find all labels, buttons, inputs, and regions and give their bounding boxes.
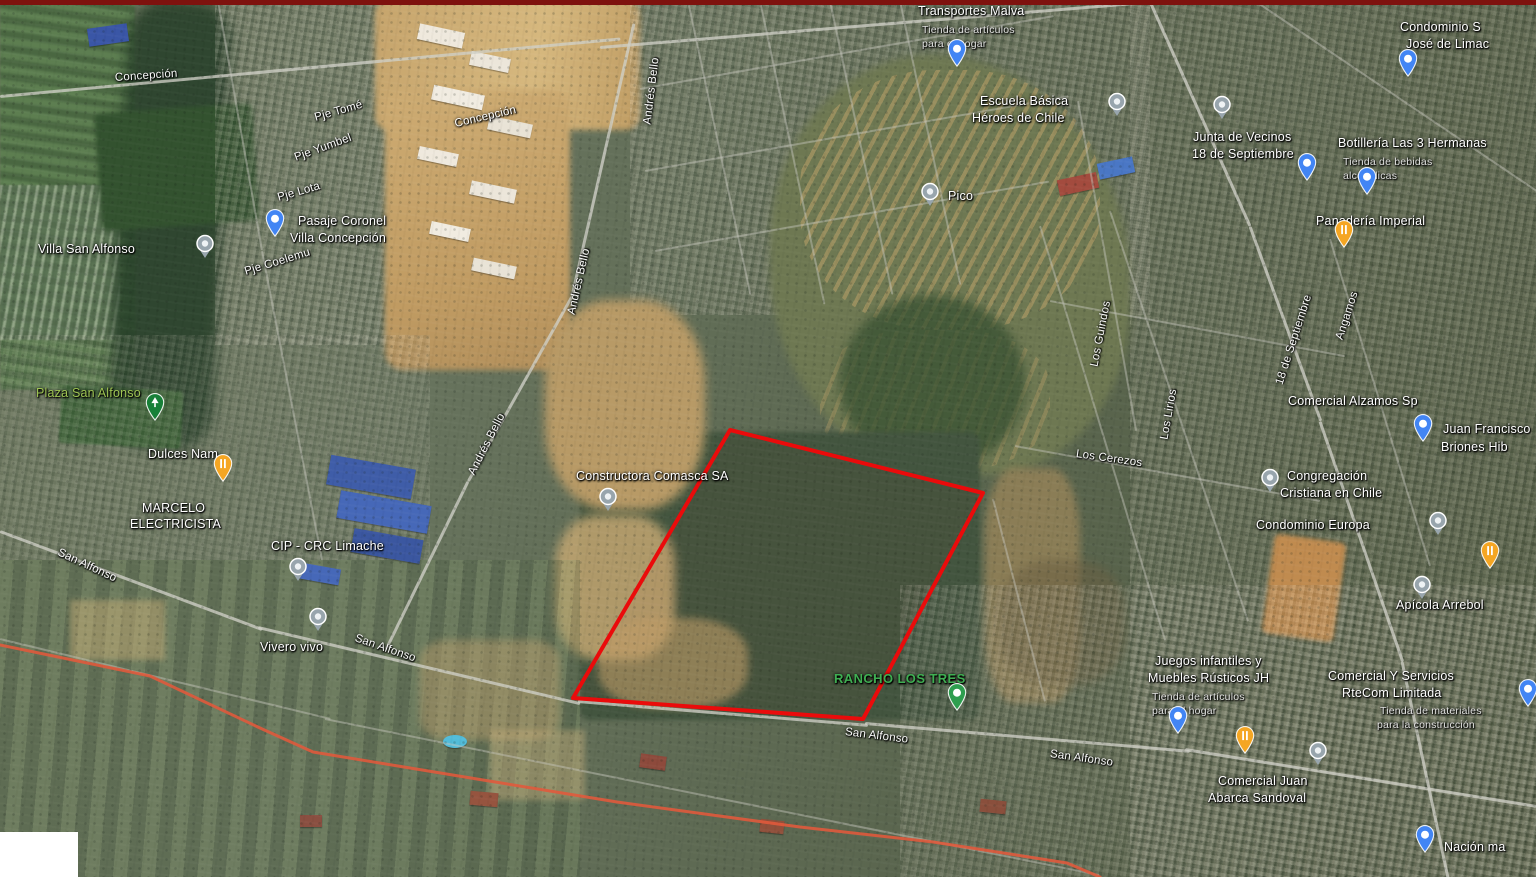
map-pin-blue[interactable]: [264, 208, 286, 242]
map-label-condominio-europa[interactable]: Condominio Europa: [1256, 518, 1370, 532]
map-label-ap-cola-arrebol[interactable]: Apícola Arrebol: [1396, 598, 1484, 612]
map-pin-blue[interactable]: [1414, 824, 1436, 858]
map-label-briones-hib[interactable]: Briones Hib: [1441, 440, 1508, 454]
map-label-plaza-san-alfonso: Plaza San Alfonso: [36, 386, 141, 400]
rural-lot-2: [420, 640, 560, 740]
map-label-comercial-juan[interactable]: Comercial Juan: [1218, 774, 1308, 788]
map-label-electricista[interactable]: ELECTRICISTA: [130, 517, 221, 531]
red-roof: [469, 791, 498, 807]
map-label-rtecom-limitada[interactable]: RteCom Limitada: [1342, 686, 1442, 700]
map-label-muebles-r-sticos-jh[interactable]: Muebles Rústicos JH: [1148, 671, 1269, 685]
map-pin-gray[interactable]: [1212, 95, 1232, 125]
map-pin-blue[interactable]: [1296, 152, 1318, 186]
map-pin-gray[interactable]: [920, 182, 940, 212]
map-pin-orange[interactable]: [1479, 540, 1501, 574]
map-pin-park[interactable]: [144, 392, 166, 426]
dirt-west-3: [598, 618, 748, 708]
map-pin-blue[interactable]: [1517, 678, 1536, 712]
map-pin-blue[interactable]: [1167, 705, 1189, 739]
map-pin-gray[interactable]: [195, 234, 215, 264]
map-pin-gray[interactable]: [288, 557, 308, 587]
map-label-cip-crc-limache[interactable]: CIP - CRC Limache: [271, 539, 384, 553]
blank-corner-box: [0, 832, 78, 877]
map-label-juan-francisco[interactable]: Juan Francisco: [1443, 422, 1531, 436]
map-label-botiller-a-las-3-hermanas[interactable]: Botillería Las 3 Hermanas: [1338, 136, 1487, 150]
map-label-junta-de-vecinos[interactable]: Junta de Vecinos: [1193, 130, 1291, 144]
map-pin-orange[interactable]: [212, 453, 234, 487]
map-pin-gray[interactable]: [308, 607, 328, 637]
map-label-comercial-y-servicios[interactable]: Comercial Y Servicios: [1328, 669, 1454, 683]
map-pin-green[interactable]: [946, 682, 968, 716]
map-label-naci-n-ma[interactable]: Nación ma: [1444, 840, 1506, 854]
map-label-para-la-construcci-n: para la construcción: [1377, 719, 1475, 731]
map-pin-gray[interactable]: [1428, 511, 1448, 541]
red-roof: [979, 799, 1006, 815]
map-label-villa-san-alfonso: Villa San Alfonso: [38, 242, 135, 256]
map-pin-gray[interactable]: [1107, 92, 1127, 122]
map-pin-blue[interactable]: [1397, 48, 1419, 82]
map-label-andr-s-bello: Andrés Bello: [466, 411, 508, 477]
rural-lot-1: [70, 600, 165, 660]
urban-left: [215, 0, 400, 345]
map-label-condominio-s[interactable]: Condominio S: [1400, 20, 1481, 34]
map-pin-gray[interactable]: [1260, 468, 1280, 498]
rural-lot-3: [490, 730, 585, 800]
map-label-escuela-b-sica[interactable]: Escuela Básica: [980, 94, 1068, 108]
map-pin-blue[interactable]: [1412, 413, 1434, 447]
map-label-comercial-alzamos-sp[interactable]: Comercial Alzamos Sp: [1288, 394, 1418, 408]
map-label-congregaci-n[interactable]: Congregación: [1287, 469, 1367, 483]
map-label-h-roes-de-chile[interactable]: Héroes de Chile: [972, 111, 1065, 125]
map-pin-blue[interactable]: [1356, 166, 1378, 200]
map-label-tienda-de-art-culos: Tienda de artículos: [1152, 691, 1245, 703]
map-label-vivero-vivo[interactable]: Vivero vivo: [260, 640, 323, 654]
red-roof: [759, 819, 784, 834]
map-label-cristiana-en-chile[interactable]: Cristiana en Chile: [1280, 486, 1382, 500]
construction-zone: [385, 90, 570, 370]
map-label-pico: Pico: [948, 189, 973, 203]
map-label-18-de-septiembre[interactable]: 18 de Septiembre: [1192, 147, 1294, 161]
top-border-strip: [0, 0, 1536, 5]
map-label-abarca-sandoval[interactable]: Abarca Sandoval: [1208, 791, 1306, 805]
map-label-juegos-infantiles-y[interactable]: Juegos infantiles y: [1155, 654, 1262, 668]
map-label-pasaje-coronel[interactable]: Pasaje Coronel: [298, 214, 386, 228]
red-roof: [639, 753, 667, 770]
map-label-transportes-malva[interactable]: Transportes Malva: [918, 4, 1024, 18]
map-pin-orange[interactable]: [1234, 725, 1256, 759]
red-roof: [300, 815, 322, 827]
map-label-tienda-de-art-culos: Tienda de artículos: [922, 24, 1015, 36]
map-pin-gray[interactable]: [1308, 741, 1328, 771]
satellite-map[interactable]: ConcepciónConcepciónPje ToméPje YumbelPj…: [0, 0, 1536, 877]
map-label-villa-concepci-n[interactable]: Villa Concepción: [290, 231, 386, 245]
map-pin-orange[interactable]: [1333, 219, 1355, 253]
map-pin-gray[interactable]: [1412, 575, 1432, 605]
map-label-constructora-comasca-sa[interactable]: Constructora Comasca SA: [576, 469, 729, 483]
map-pin-gray[interactable]: [598, 487, 618, 517]
map-pin-blue[interactable]: [946, 38, 968, 72]
map-label-tienda-de-materiales: Tienda de materiales: [1380, 705, 1482, 717]
map-label-dulces-nam[interactable]: Dulces Nam: [148, 447, 218, 461]
map-label-marcelo[interactable]: MARCELO: [142, 501, 205, 515]
